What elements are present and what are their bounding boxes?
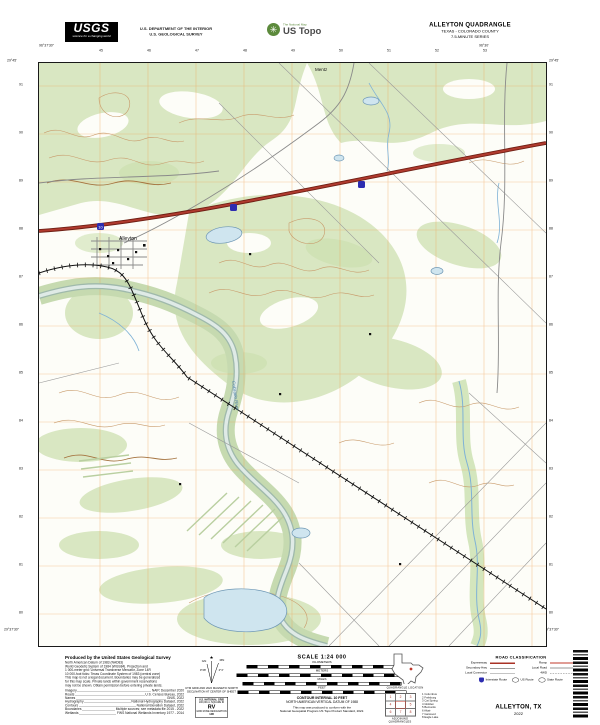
grid-tick-right: 81 <box>549 563 553 567</box>
grid-tick-top: 49 <box>291 49 295 53</box>
grid-tick-right: 88 <box>549 227 553 231</box>
grid-tick-left: 90 <box>19 131 23 135</box>
texas-outline <box>392 654 423 684</box>
gn-angle: 0°28' <box>200 668 207 672</box>
scale-bar <box>238 691 407 695</box>
route-marker-label: US Route <box>521 679 534 682</box>
credits-row-value: FWS National Wetlands Inventory 1977 - 2… <box>117 711 184 715</box>
scale-bar <box>247 665 398 669</box>
grid-tick-right: 80 <box>549 611 553 615</box>
road-class-label: Local Connector <box>456 672 487 675</box>
road-classification-grid: ExpresswayRampSecondary HwyLocal RoadLoc… <box>456 662 586 675</box>
grid-tick-top: 52 <box>435 49 439 53</box>
grid-tick-top: 50 <box>339 49 343 53</box>
adjoining-grid-cell: 5 <box>406 701 416 709</box>
adjoining-quads: 12345678 ADJOINING QUADRANGLES <box>385 693 416 724</box>
corner-lat-bl: 29°37'30" <box>4 628 19 632</box>
grid-tick-top: 53 <box>483 49 487 53</box>
credits-row-leader <box>79 711 116 714</box>
road-class-sample <box>490 673 515 674</box>
magnetic-north-label: MN <box>220 658 225 662</box>
scale-bar-unit: METERS <box>232 670 412 674</box>
grid-tick-left: 87 <box>19 275 23 279</box>
true-north-star: ★ <box>209 655 214 660</box>
adjoining-name: 8 Eagle Lake <box>422 716 438 719</box>
grid-tick-right: 82 <box>549 515 553 519</box>
adjoining-caption: ADJOINING QUADRANGLES <box>385 718 415 724</box>
corner-lon-tr: 96°30' <box>479 44 489 48</box>
road-class-sample <box>490 662 515 664</box>
credits-row-leader <box>76 696 166 699</box>
adjoining-grid-center <box>396 701 406 709</box>
route-marker-label: State Route <box>547 679 563 682</box>
grid-tick-left: 89 <box>19 179 23 183</box>
grid-north-label: GN <box>202 659 207 663</box>
grid-tick-left: 82 <box>19 515 23 519</box>
road-classification-title: ROAD CLASSIFICATION <box>456 655 586 660</box>
credits-row-leader <box>78 689 151 692</box>
grid-tick-left: 88 <box>19 227 23 231</box>
scale-bar-unit: KILOMETERS <box>232 661 412 665</box>
route-oval-icon <box>512 678 519 683</box>
sheet-imprint: ALLEYTON, TX 2022 <box>456 703 581 716</box>
adjoining-grid-cell: 8 <box>406 709 416 717</box>
credits-row-leader <box>85 700 131 703</box>
credits-line: may not be shown. Obtain permission befo… <box>65 684 187 688</box>
usng-box: U.S. NATIONAL GRID 100,000-m SQUARE ID R… <box>195 697 228 718</box>
shield-number: 10 <box>98 225 103 230</box>
adjoining-grid: 12345678 <box>385 693 416 717</box>
mn-angle: 2°3' <box>219 668 224 672</box>
corner-lat-tl: 29°45' <box>7 59 17 63</box>
route-markers: Interstate RouteUS RouteState Route <box>456 678 586 683</box>
adjoining-grid-cell: 1 <box>386 694 396 702</box>
road-class-label: Expressway <box>456 662 487 665</box>
route-marker: US Route <box>512 678 534 683</box>
credits-row-leader <box>82 708 114 711</box>
footer: Produced by the United States Geological… <box>0 650 600 725</box>
grid-tick-right: 90 <box>549 131 553 135</box>
road-class-sample <box>550 668 575 669</box>
grid-tick-right: 86 <box>549 323 553 327</box>
us-topo-map-sheet: USGS science for a changing world U.S. D… <box>0 0 600 725</box>
grid-tick-left: 85 <box>19 371 23 375</box>
grid-tick-right: 87 <box>549 275 553 279</box>
corner-lat-tr: 29°45' <box>549 59 559 63</box>
grid-tick-left: 80 <box>19 611 23 615</box>
corner-lon-tl: 96°37'30" <box>39 44 54 48</box>
grid-tick-top: 48 <box>243 49 247 53</box>
scale-bar <box>243 682 402 686</box>
adjoining-grid-cell: 3 <box>406 694 416 702</box>
state-locator-caption: QUADRANGLE LOCATION <box>386 687 424 690</box>
grid-tick-left: 81 <box>19 563 23 567</box>
production-credits: Produced by the United States Geological… <box>65 655 187 715</box>
scale-bar <box>237 674 408 678</box>
grid-tick-right: 85 <box>549 371 553 375</box>
route-marker: Interstate Route <box>479 678 507 683</box>
route-marker: State Route <box>539 678 563 683</box>
road-classification: ROAD CLASSIFICATION ExpresswayRampSecond… <box>456 655 586 683</box>
sheet-year: 2022 <box>456 712 581 717</box>
grid-tick-top: 46 <box>147 49 151 53</box>
grid-tick-left: 86 <box>19 323 23 327</box>
grid-tick-top: 45 <box>99 49 103 53</box>
grid-tick-left: 91 <box>19 83 23 87</box>
topo-map: 10 Alleyton Mentz Colorado River <box>38 62 547 647</box>
scale-bar-unit: MILES <box>232 678 412 682</box>
scale-bars: KILOMETERSMETERSMILESFEET <box>232 661 412 694</box>
grid-tick-top: 51 <box>387 49 391 53</box>
scale-bar-unit: FEET <box>232 687 412 691</box>
adjoining-grid-cell: 2 <box>396 694 406 702</box>
road-class-label: Local Road <box>518 667 547 670</box>
barcode-strip <box>573 650 588 719</box>
road-class-sample <box>550 663 575 664</box>
adjoining-grid-cell: 4 <box>386 701 396 709</box>
topo-map-canvas: 10 Alleyton Mentz Colorado River <box>39 63 546 646</box>
settlement-label: Mentz <box>315 67 328 72</box>
credits-row: WetlandsFWS National Wetlands Inventory … <box>65 711 184 715</box>
state-locator: QUADRANGLE LOCATION <box>386 653 424 690</box>
grid-tick-left: 84 <box>19 419 23 423</box>
grid-tick-top: 47 <box>195 49 199 53</box>
road-class-label: Ramp <box>518 662 547 665</box>
grid-tick-left: 83 <box>19 467 23 471</box>
town-label: Alleyton <box>119 236 137 242</box>
interstate-shield-icon <box>479 678 484 683</box>
route-marker-label: Interstate Route <box>486 679 507 682</box>
usng-zone: 14R <box>196 713 227 716</box>
adjoining-grid-cell: 7 <box>396 709 406 717</box>
grid-tick-right: 91 <box>549 83 553 87</box>
grid-tick-right: 89 <box>549 179 553 183</box>
road-class-sample <box>490 668 515 669</box>
grid-tick-right: 84 <box>549 419 553 423</box>
road-class-sample <box>550 673 575 674</box>
credits-title: Produced by the United States Geological… <box>65 655 187 660</box>
sheet-name: ALLEYTON, TX <box>456 703 581 710</box>
credits-row-leader <box>75 693 144 696</box>
declination-diagram: ★ GN MN 0°28' 2°3' <box>194 654 229 689</box>
credits-row-leader <box>79 704 135 707</box>
route-oval-icon <box>539 678 546 683</box>
scale-title: SCALE 1:24 000 <box>232 654 412 660</box>
credits-lines: North American Datum of 1983 (NAD83)Worl… <box>65 661 187 688</box>
adjoining-names: 1 Columbus2 Frelsburg3 Cat Spring4 Glidd… <box>422 693 438 719</box>
adjoining-grid-cell: 6 <box>386 709 396 717</box>
road-class-label: 4WD <box>518 672 547 675</box>
grid-tick-right: 83 <box>549 467 553 471</box>
credits-row-label: Wetlands <box>65 711 78 715</box>
quad-location-dot <box>410 668 413 671</box>
credits-table: ImageryNAIP, December 2020RoadsU.S. Cens… <box>65 689 187 715</box>
road-class-label: Secondary Hwy <box>456 667 487 670</box>
